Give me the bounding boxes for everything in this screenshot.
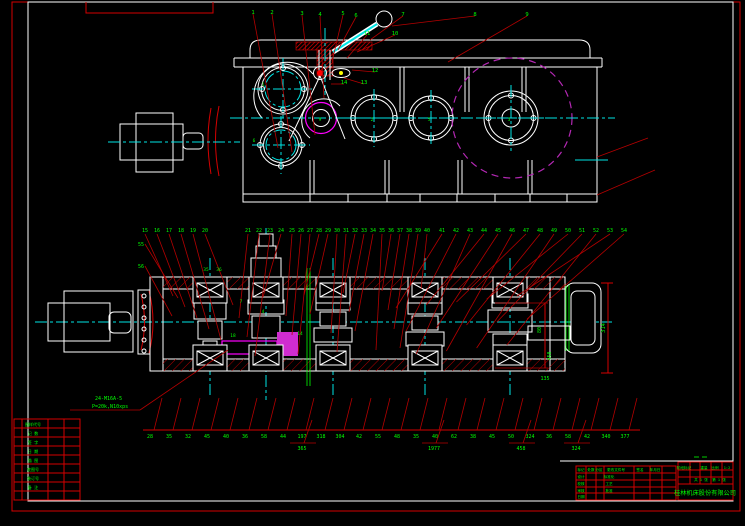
balloon-label: 42	[453, 228, 459, 234]
title-block-field: 校核	[577, 481, 585, 486]
title-block-field: 分区	[595, 467, 603, 472]
dim-value: 45	[489, 434, 495, 440]
balloon-label: 49	[551, 228, 557, 234]
balloon-label: 17	[166, 228, 172, 234]
part-label: 4	[262, 309, 265, 315]
balloon-label: 44	[481, 228, 487, 234]
balloon-label: 19	[190, 228, 196, 234]
dim-450: 450	[547, 351, 553, 360]
dim-value: 35	[166, 434, 172, 440]
dim-value: 324	[571, 446, 580, 452]
dim-314: 314	[601, 322, 607, 333]
dim-value: 458	[516, 446, 525, 452]
bore-label: 2	[371, 117, 374, 123]
title-block-field: 阶段标记	[677, 465, 692, 470]
section-bearings	[193, 277, 527, 371]
balloon-label: 30	[334, 228, 340, 234]
bore-label: 3	[508, 117, 511, 123]
dim-value: 35	[413, 434, 419, 440]
dim-value: 42	[356, 434, 362, 440]
part-label: 18	[230, 333, 236, 339]
balloon-label: 31	[343, 228, 349, 234]
dim-value: 36	[546, 434, 552, 440]
dim-value: 50	[508, 434, 514, 440]
balloon-label: 35	[379, 228, 385, 234]
top-view-housing	[208, 40, 602, 202]
dim-value: 340	[601, 434, 610, 440]
dim-value: 55	[375, 434, 381, 440]
dim-value: 62	[451, 434, 457, 440]
title-block-field: 标记	[577, 467, 585, 472]
balloon-label: 21	[245, 228, 251, 234]
balloon-label: 6	[354, 13, 357, 19]
dim-value: 45	[204, 434, 210, 440]
dim-value: 58	[261, 434, 267, 440]
title-block-field: 重量	[700, 465, 708, 470]
balloon-label: 12	[372, 68, 379, 74]
balloon-label: 53	[607, 228, 613, 234]
dim-value: 324	[525, 434, 534, 440]
dim-value: 44	[280, 434, 286, 440]
balloon-label: 8	[473, 12, 476, 18]
balloon-label: 47	[523, 228, 529, 234]
balloon-label: 51	[579, 228, 585, 234]
balloon-label: 26	[298, 228, 304, 234]
balloon-label: 39	[415, 228, 421, 234]
dim-value: 304	[335, 434, 344, 440]
balloon-label: 38	[406, 228, 412, 234]
balloon-label: 32	[352, 228, 358, 234]
title-block-field: 1:2	[724, 466, 731, 470]
dim-80: 80	[537, 327, 543, 333]
title-block-field: 标准化	[604, 474, 615, 479]
bottom-plugs	[310, 194, 567, 202]
balloon-label: 16	[154, 228, 160, 234]
title-block-field: 设计	[577, 474, 585, 479]
dim-value: 48	[394, 434, 400, 440]
balloon-label: 2	[270, 10, 273, 16]
part-label: 7	[240, 299, 243, 305]
balloon-label: 3	[300, 11, 303, 17]
balloon-label: 13	[361, 80, 368, 86]
bore-label: 1	[262, 82, 265, 88]
part-label: 36	[216, 267, 222, 273]
balloon-label: 20	[202, 228, 208, 234]
detent-dot	[339, 71, 343, 75]
section-shafts	[194, 228, 570, 400]
balloon-label: 54	[621, 228, 627, 234]
balloon-label: 1	[251, 10, 254, 16]
balloon-label: 7	[401, 12, 404, 18]
title-block-field: 第 1 张	[712, 477, 726, 482]
balloon-label: 25	[289, 228, 295, 234]
company-name: 桂林机床股份有限公司	[674, 489, 736, 497]
balloon-label: 45	[495, 228, 501, 234]
dim-135: 135	[540, 376, 549, 382]
bottom-dimensions: 2835324540365844197318304425548354062384…	[147, 398, 637, 452]
dim-value: 58	[565, 434, 571, 440]
dim-value: 38	[470, 434, 476, 440]
section-dimensions: 314 80 450 135 24-M16A-5 P=20k,N10xps	[70, 283, 640, 430]
balloon-label: 14	[341, 80, 348, 86]
strip-field: 备 注	[28, 484, 38, 490]
balloon-label: 23	[267, 228, 273, 234]
strip-field: 底图号	[27, 466, 39, 472]
title-block-field: 工艺	[605, 481, 613, 486]
balloon-label: 24	[278, 228, 284, 234]
title-block-field: 年月日	[650, 467, 661, 472]
strip-field: 图样代号	[25, 421, 41, 427]
strip-field: 记 数	[28, 430, 38, 436]
bore-label: 5	[428, 117, 431, 123]
balloon-label: 22	[256, 228, 262, 234]
dim-value: 365	[297, 446, 306, 452]
balloon-label: 43	[467, 228, 473, 234]
title-block-field: 共 1 张	[694, 477, 708, 482]
balloon-label: 5	[341, 11, 344, 17]
balloon-label: 11	[364, 31, 371, 37]
dim-value: 1977	[428, 446, 440, 452]
note-line2: P=20k,N10xps	[92, 404, 128, 410]
balloon-label: 28	[316, 228, 322, 234]
title-block-field: 签名	[636, 467, 644, 472]
dim-value: 32	[185, 434, 191, 440]
dim-value: 377	[620, 434, 629, 440]
balloon-label: 37	[397, 228, 403, 234]
balloon-label: 27	[307, 228, 313, 234]
bore-label: 9	[319, 117, 322, 123]
part-label: 14	[297, 331, 303, 337]
strip-field: 装订号	[27, 475, 39, 481]
balloon-label: 4	[318, 12, 322, 18]
bore-label: 6	[253, 138, 256, 144]
balloon-label: 36	[388, 228, 394, 234]
title-block-field: 日期	[577, 494, 585, 499]
balloon-label: 56	[138, 264, 144, 270]
note-line1: 24-M16A-5	[95, 396, 122, 402]
left-strip-table	[14, 419, 80, 500]
dim-value: 28	[147, 434, 153, 440]
strip-field: 签 字	[28, 439, 38, 445]
balloon-label: 29	[325, 228, 331, 234]
strip-field: 日 期	[28, 448, 38, 454]
balloon-label: 48	[537, 228, 543, 234]
balloon-label: 34	[370, 228, 376, 234]
dim-value: 318	[316, 434, 325, 440]
title-block-field: 更改文件号	[607, 467, 625, 472]
balloon-label: 18	[178, 228, 184, 234]
cad-drawing-canvas[interactable]: 1234567891011121314	[0, 0, 745, 526]
dim-value: 40	[223, 434, 229, 440]
part-label: 35	[203, 267, 209, 273]
input-coupling-top	[108, 113, 240, 172]
balloon-label: 33	[361, 228, 367, 234]
balloon-label: 52	[593, 228, 599, 234]
title-block-field: 审核	[577, 488, 585, 493]
balloon-label: 40	[424, 228, 430, 234]
balloon-label: 50	[565, 228, 571, 234]
balloon-label: 46	[509, 228, 515, 234]
balloon-label: 10	[392, 31, 399, 37]
pivot-dot	[317, 70, 323, 76]
cover-bolts	[310, 67, 532, 194]
balloon-label: 55	[138, 242, 144, 248]
balloon-label: 9	[525, 12, 528, 18]
bearing-bores	[230, 58, 615, 178]
strip-field: 描 图	[28, 457, 38, 463]
dim-value: 42	[584, 434, 590, 440]
title-block-field: 批准	[605, 488, 613, 493]
title-block-field: 比例	[711, 465, 719, 470]
title-block-field: 处数	[587, 467, 595, 472]
balloon-label: 41	[439, 228, 445, 234]
balloon-label: 15	[142, 228, 148, 234]
dim-value: 36	[242, 434, 248, 440]
